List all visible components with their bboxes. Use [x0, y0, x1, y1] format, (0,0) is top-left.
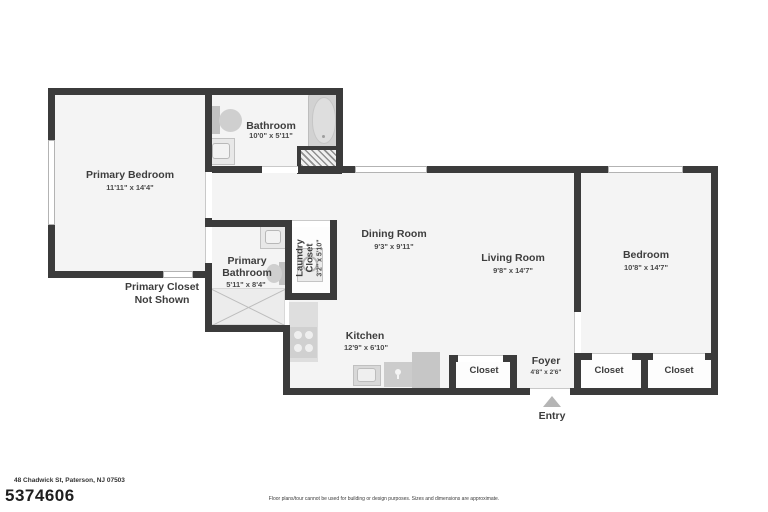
window — [355, 166, 427, 173]
closet-bedroom-right-label: Closet — [664, 366, 693, 377]
wall — [48, 88, 55, 140]
dining-room-label: Dining Room — [361, 228, 426, 240]
wall — [711, 166, 718, 395]
door-opening-laundry — [292, 220, 330, 227]
wall — [581, 166, 608, 173]
wall — [283, 325, 290, 395]
floor-plan: Primary Bedroom 11'11" x 14'4" Bathroom … — [0, 0, 768, 512]
stove-burner — [305, 344, 313, 352]
entry-label: Entry — [539, 410, 566, 422]
laundry-label-line2: Closet — [306, 239, 316, 276]
kitchen-dims: 12'9" x 6'10" — [344, 344, 388, 353]
door-opening-bedroom — [574, 312, 581, 353]
window — [163, 271, 193, 278]
wall — [285, 220, 292, 300]
wall — [48, 271, 163, 278]
primary-closet-note-line2: Not Shown — [135, 294, 190, 306]
bathroom-sink-basin — [212, 143, 230, 159]
living-room-dims: 9'8" x 14'7" — [493, 267, 533, 276]
property-address: 48 Chadwick St, Paterson, NJ 07503 — [14, 477, 125, 484]
wall — [205, 220, 292, 227]
wall — [336, 88, 343, 173]
wall — [205, 325, 290, 332]
primary-closet-note-line1: Primary Closet — [125, 281, 199, 293]
hallway-floor — [209, 172, 337, 220]
primary-bedroom-label: Primary Bedroom — [86, 169, 174, 181]
door-opening-bathroom — [262, 166, 298, 173]
stove-burner — [294, 344, 302, 352]
door-opening-primary-bathroom — [205, 227, 212, 263]
wall — [705, 353, 718, 360]
wall — [574, 166, 581, 312]
wall — [510, 355, 517, 395]
wall — [205, 88, 343, 95]
closet-bedroom-left-label: Closet — [594, 366, 623, 377]
stove-burner — [305, 331, 313, 339]
wall — [205, 88, 212, 172]
door-opening-closet-foyer — [458, 355, 503, 362]
wall — [205, 263, 212, 332]
wall — [641, 353, 648, 395]
foyer-label: Foyer — [532, 355, 561, 367]
primary-bathroom-sink-basin — [265, 230, 281, 244]
door-opening-closet-bedroom-left — [592, 353, 632, 360]
window — [48, 140, 55, 225]
bathroom-dims: 10'0" x 5'11" — [249, 132, 293, 141]
laundry-closet-label: Laundry Closet 3'2" x 5'10" — [296, 239, 325, 276]
window — [608, 166, 683, 173]
wall — [48, 88, 215, 95]
wall — [298, 166, 355, 173]
kitchen-sink-basin — [357, 368, 376, 382]
primary-bathroom-dims: 5'11" x 8'4" — [226, 281, 265, 290]
bathtub-drain — [322, 135, 325, 138]
door-opening-primary-bedroom — [205, 172, 212, 218]
entry-door-opening — [530, 388, 570, 395]
closet-foyer-label: Closet — [469, 366, 498, 377]
primary-bedroom-dims: 11'11" x 14'4" — [106, 184, 153, 193]
entry-arrow-icon — [543, 396, 561, 407]
wall — [427, 166, 581, 173]
toilet-bowl — [219, 109, 242, 132]
laundry-closet-dims: 3'2" x 5'10" — [317, 239, 325, 276]
disclaimer-text: Floor plans/tour cannot be used for buil… — [269, 496, 499, 502]
shower-pan — [210, 288, 285, 325]
listing-id: 5374606 — [5, 486, 75, 506]
primary-bathroom-label-line1: Primary — [227, 255, 266, 267]
refrigerator — [412, 352, 440, 388]
wall — [574, 353, 592, 360]
living-room-label: Living Room — [481, 252, 545, 264]
bedroom-label: Bedroom — [623, 249, 669, 261]
primary-bathroom-label-line2: Bathroom — [222, 267, 272, 279]
wall — [449, 355, 458, 362]
dishwasher-knob-stem — [397, 375, 399, 379]
foyer-dims: 4'8" x 2'6" — [531, 369, 562, 376]
stove-burner — [294, 331, 302, 339]
wall — [285, 293, 337, 300]
wall — [205, 166, 262, 173]
wall — [283, 388, 530, 395]
dining-room-dims: 9'3" x 9'11" — [374, 243, 413, 252]
door-opening-closet-bedroom-right — [653, 353, 705, 360]
wall — [330, 220, 337, 300]
bedroom-dims: 10'8" x 14'7" — [624, 264, 668, 273]
kitchen-label: Kitchen — [346, 330, 385, 342]
shower-x-lines — [211, 289, 286, 326]
